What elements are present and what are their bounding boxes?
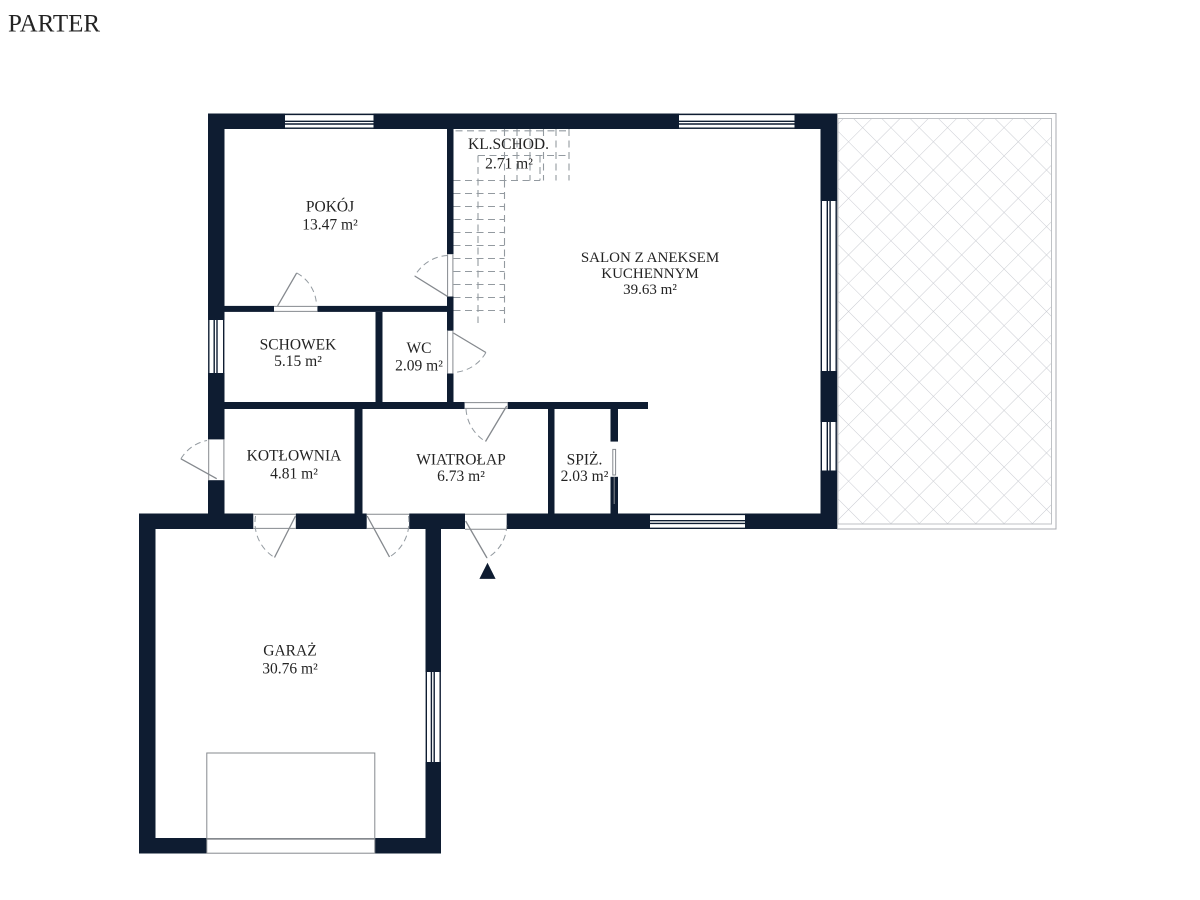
svg-text:GARAŻ: GARAŻ [263,643,316,660]
svg-text:SPIŻ.: SPIŻ. [567,452,603,469]
svg-text:KUCHENNYM: KUCHENNYM [601,266,699,282]
svg-text:SCHOWEK: SCHOWEK [260,337,337,354]
svg-text:POKÓJ: POKÓJ [306,199,354,216]
svg-text:2.71 m²: 2.71 m² [485,156,533,173]
svg-text:2.09 m²: 2.09 m² [395,358,443,375]
svg-text:6.73 m²: 6.73 m² [437,468,485,485]
svg-text:39.63 m²: 39.63 m² [623,282,677,298]
svg-text:WC: WC [407,340,432,357]
svg-text:KL.SCHOD.: KL.SCHOD. [468,136,549,153]
svg-text:KOTŁOWNIA: KOTŁOWNIA [247,448,343,465]
svg-text:5.15 m²: 5.15 m² [274,353,322,370]
svg-text:30.76 m²: 30.76 m² [262,661,318,678]
svg-text:PARTER: PARTER [8,11,100,38]
svg-text:2.03 m²: 2.03 m² [561,468,609,485]
svg-text:4.81 m²: 4.81 m² [270,466,318,483]
svg-text:SALON Z ANEKSEM: SALON Z ANEKSEM [581,250,719,266]
svg-text:WIATROŁAP: WIATROŁAP [416,452,506,469]
svg-text:13.47 m²: 13.47 m² [302,217,358,234]
